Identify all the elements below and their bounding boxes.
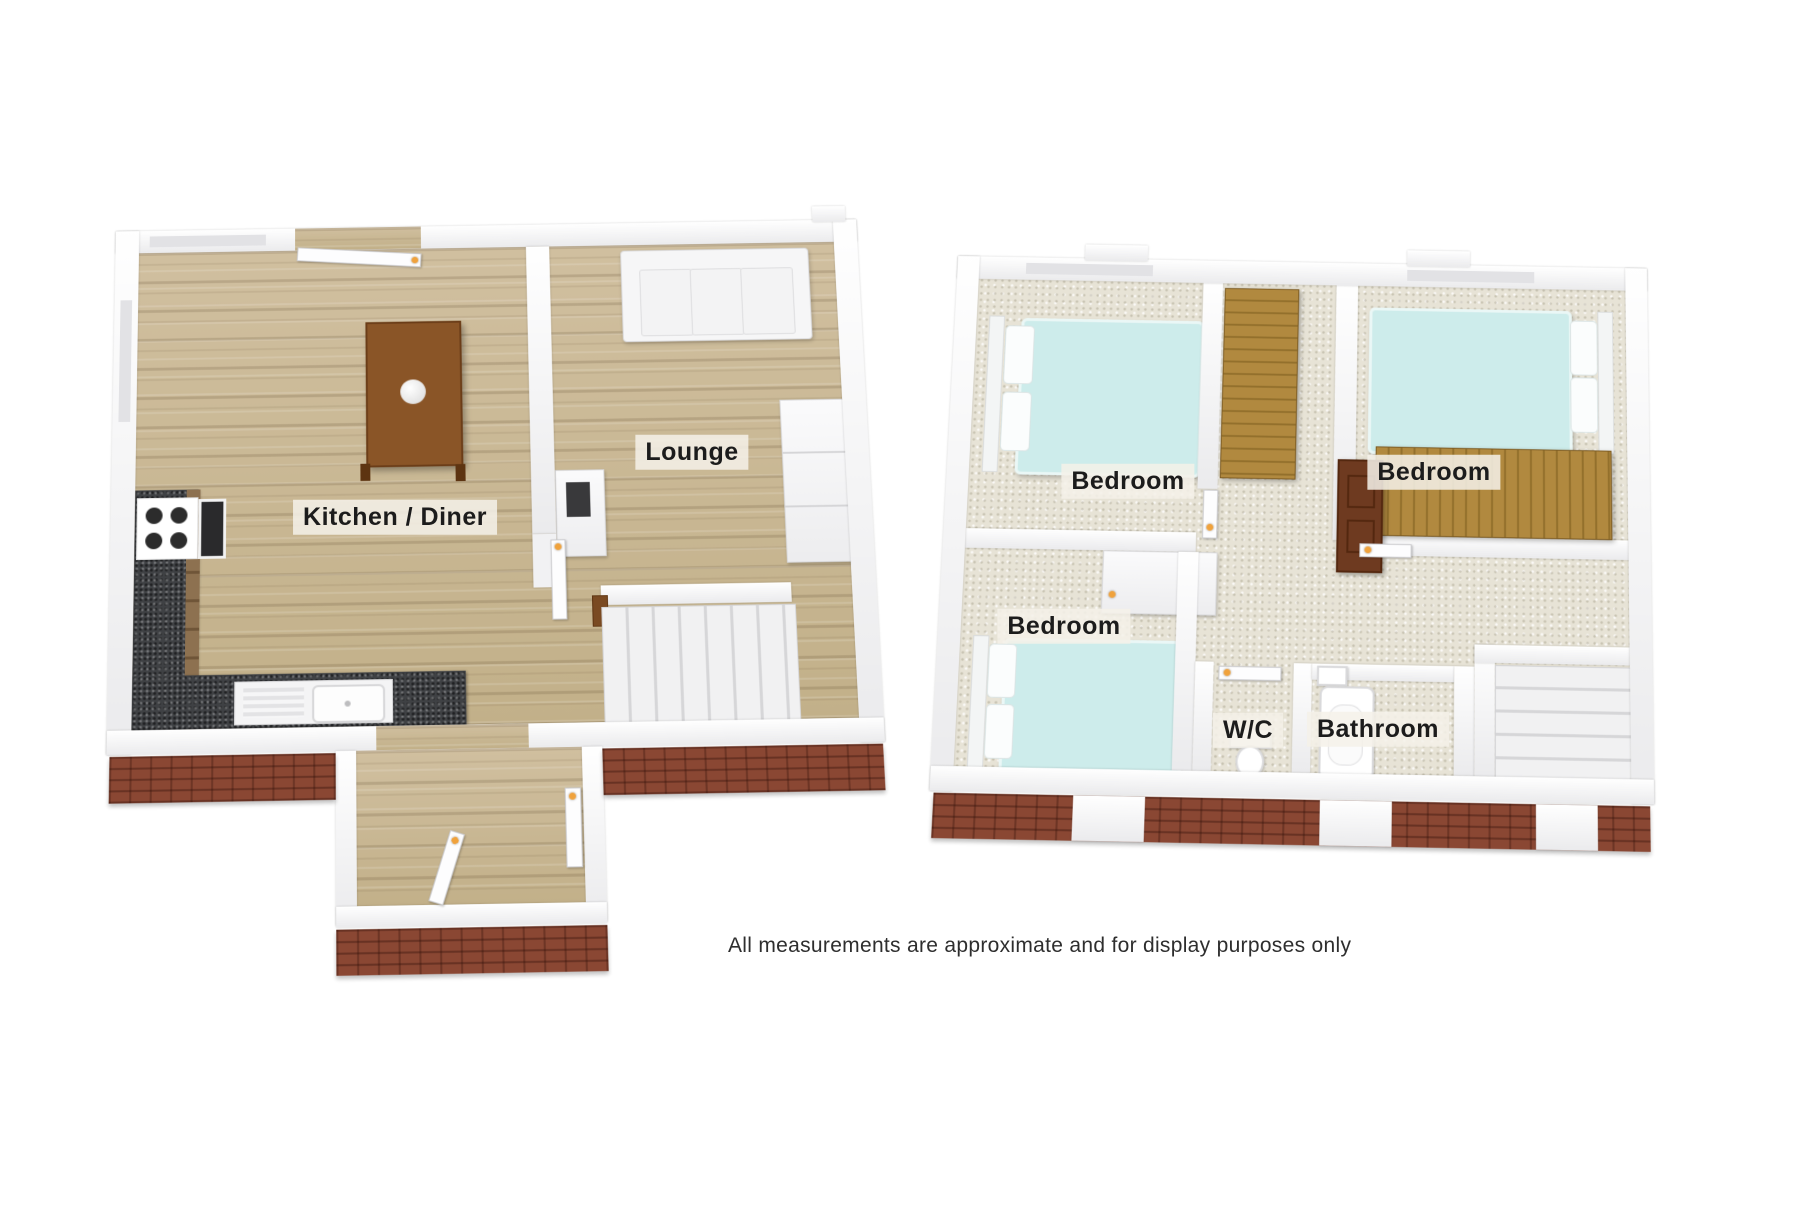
- table-leg-icon: [360, 464, 370, 481]
- window-recess: [1026, 263, 1153, 276]
- table-leg-icon: [455, 464, 465, 481]
- wall-base: [1071, 795, 1145, 842]
- burner-icon: [145, 533, 162, 550]
- headboard-icon: [1597, 312, 1614, 455]
- sofa-cushion-icon: [639, 269, 694, 337]
- burner-icon: [170, 532, 187, 549]
- wall: [582, 746, 607, 921]
- interior-door-icon: [565, 787, 583, 867]
- room-label-kitchen-diner: Kitchen / Diner: [293, 500, 497, 535]
- chimney-stub: [1407, 250, 1470, 267]
- wall: [336, 902, 607, 928]
- bed-icon: [1014, 318, 1204, 478]
- brick-plinth: [109, 753, 336, 804]
- room-label-bathroom: Bathroom: [1307, 712, 1449, 747]
- shelf-line: [785, 505, 849, 508]
- room-label-bedroom-bottom-left: Bedroom: [997, 609, 1130, 644]
- dining-table-icon: [365, 321, 463, 468]
- disclaimer-text: All measurements are approximate and for…: [728, 934, 1351, 958]
- sink-basin-icon: [312, 684, 385, 723]
- bed-icon: [998, 638, 1185, 781]
- brick-plinth: [336, 925, 608, 976]
- wardrobe-icon: [1220, 288, 1300, 480]
- door-opening: [376, 724, 529, 751]
- porch-floor: [356, 747, 586, 907]
- room-label-bedroom-top-right: Bedroom: [1367, 455, 1500, 490]
- sofa-cushion-icon: [740, 267, 796, 335]
- burner-icon: [146, 507, 163, 524]
- first-floor-plan: [917, 242, 1670, 844]
- stairs-icon: [601, 604, 801, 725]
- ground-floor-plan: [75, 206, 911, 1036]
- window-recess: [1407, 270, 1534, 284]
- door-opening: [295, 227, 421, 251]
- floorplan-canvas: Kitchen / Diner Lounge Bedroom Bedroom B…: [0, 0, 1800, 1212]
- door-handle-icon: [451, 836, 460, 845]
- burner-icon: [170, 507, 187, 524]
- door-handle-icon: [411, 257, 418, 264]
- fireplace-screen-icon: [566, 482, 591, 517]
- room-label-lounge: Lounge: [635, 435, 748, 470]
- wall-base: [1319, 800, 1392, 847]
- room-label-bedroom-top-left: Bedroom: [1061, 464, 1194, 499]
- sofa-cushion-icon: [690, 268, 745, 336]
- fruit-bowl-icon: [400, 379, 426, 404]
- window-recess: [150, 235, 266, 248]
- door-handle-icon: [569, 793, 576, 800]
- door-handle-icon: [555, 543, 562, 550]
- chimney-stub: [1085, 244, 1148, 261]
- wall: [336, 751, 357, 926]
- brick-plinth: [602, 744, 885, 795]
- room-label-wc: W/C: [1213, 713, 1283, 748]
- pillow-icon: [1570, 321, 1598, 376]
- sofa-icon: [620, 248, 813, 343]
- chimney-stub: [812, 206, 846, 222]
- interior-door-icon: [1218, 666, 1281, 681]
- stairs-icon: [1495, 665, 1634, 781]
- bed-icon: [1368, 307, 1573, 457]
- pillow-icon: [1003, 325, 1035, 384]
- wall-base: [1536, 804, 1598, 851]
